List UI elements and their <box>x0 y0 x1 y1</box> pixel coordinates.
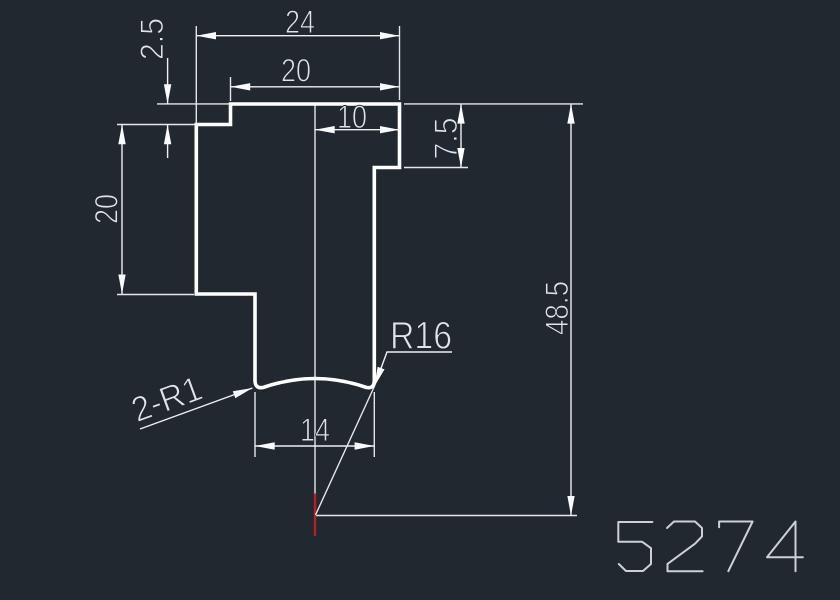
svg-text:2.5: 2.5 <box>134 18 170 60</box>
svg-text:14: 14 <box>300 412 330 448</box>
svg-text:7.5: 7.5 <box>428 118 464 160</box>
svg-text:24: 24 <box>285 4 315 40</box>
svg-text:20: 20 <box>281 53 311 89</box>
svg-text:20: 20 <box>89 194 125 224</box>
svg-text:R16: R16 <box>390 315 452 358</box>
svg-text:48.5: 48.5 <box>539 281 575 335</box>
svg-text:10: 10 <box>337 99 367 135</box>
